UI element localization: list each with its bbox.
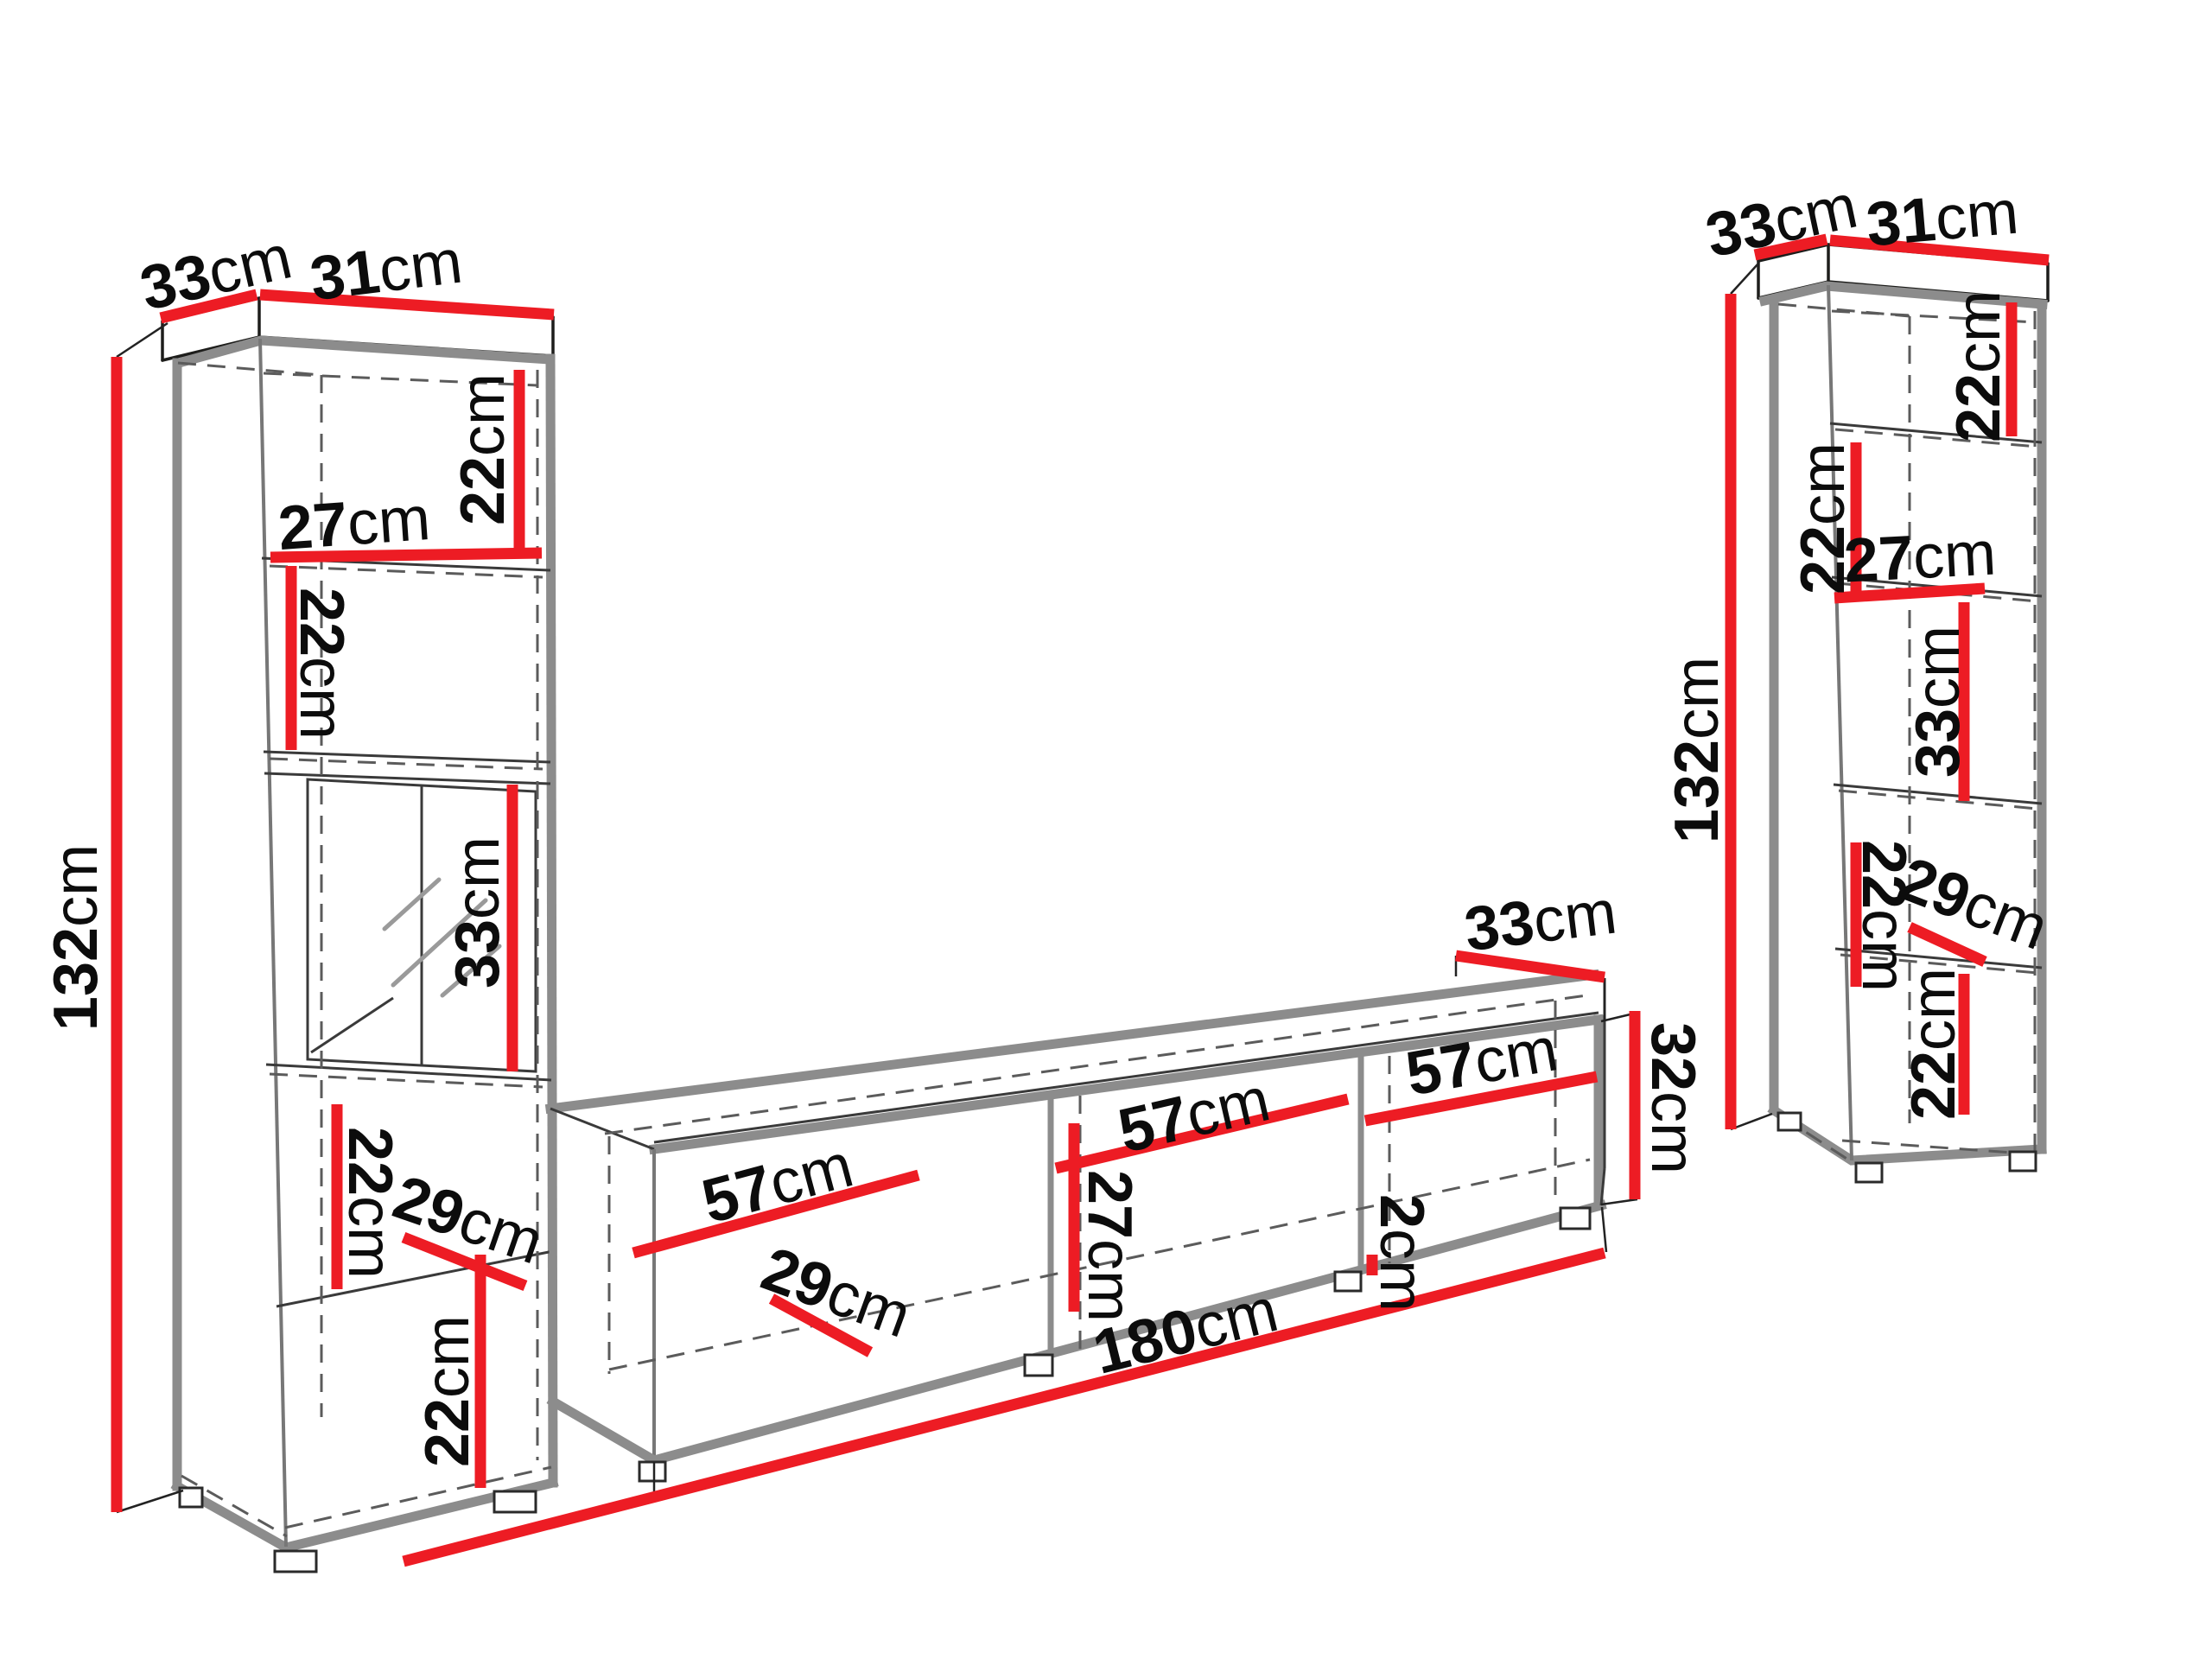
tv-stand: 33cm 57cm 57cm 57cm 27cm 29cm 2cm 180cm …: [404, 878, 1707, 1561]
tv-stand-foot: [1560, 1208, 1590, 1229]
dim-right-glass-height: 33cm: [1904, 626, 1973, 778]
extension-line: [1731, 1114, 1772, 1129]
right-cabinet-foot: [2010, 1152, 2036, 1171]
left-cabinet-foot: [275, 1551, 316, 1572]
dim-tv-inner-height: 27cm: [1075, 1170, 1144, 1322]
dim-left-width-top: 31cm: [307, 227, 467, 315]
right-cabinet: 33cm 31cm 132cm 22cm 22cm 27cm 33cm 22cm…: [1662, 172, 2057, 1182]
furniture-dimension-diagram: 33cm 31cm 132cm 22cm 27cm 22cm 33cm 22cm…: [0, 0, 2212, 1659]
dim-tv-panel-thickness: 2cm: [1367, 1194, 1436, 1312]
dim-tv-bay3-width: 57cm: [1401, 1014, 1562, 1109]
dim-left-shelf1-width: 27cm: [276, 484, 432, 563]
left-cabinet-foot: [494, 1491, 536, 1512]
extension-line: [1731, 264, 1758, 294]
dim-left-shelf5-height: 22cm: [413, 1315, 482, 1467]
dim-tv-bay1-width: 57cm: [696, 1131, 861, 1237]
dim-right-shelf2-width: 27cm: [1842, 518, 1998, 595]
dim-right-height: 132cm: [1662, 657, 1732, 843]
tv-stand-foot: [1025, 1355, 1052, 1376]
tv-stand-foot: [1335, 1272, 1361, 1291]
dim-right-depth-top: 33cm: [1700, 172, 1864, 271]
left-cabinet: 33cm 31cm 132cm 22cm 27cm 22cm 33cm 22cm…: [41, 222, 554, 1572]
dim-left-shelf2-height: 22cm: [287, 588, 356, 740]
dim-right-shelf5-height: 22cm: [1899, 968, 1968, 1120]
right-cabinet-foot: [1856, 1163, 1882, 1182]
right-cabinet-foot: [1778, 1113, 1801, 1130]
dim-tv-height: 32cm: [1638, 1022, 1707, 1174]
tv-stand-foot: [639, 1462, 665, 1481]
dim-tv-depth-top: 33cm: [1461, 878, 1621, 965]
dim-right-shelf1-height: 22cm: [1944, 290, 2013, 442]
dim-right-width-top: 31cm: [1864, 177, 2021, 259]
extension-line: [117, 1491, 183, 1512]
dim-left-shelf1-height: 22cm: [448, 373, 518, 525]
dim-left-height: 132cm: [41, 844, 111, 1031]
extension-line: [117, 323, 168, 357]
dim-left-glass-height: 33cm: [443, 836, 512, 988]
